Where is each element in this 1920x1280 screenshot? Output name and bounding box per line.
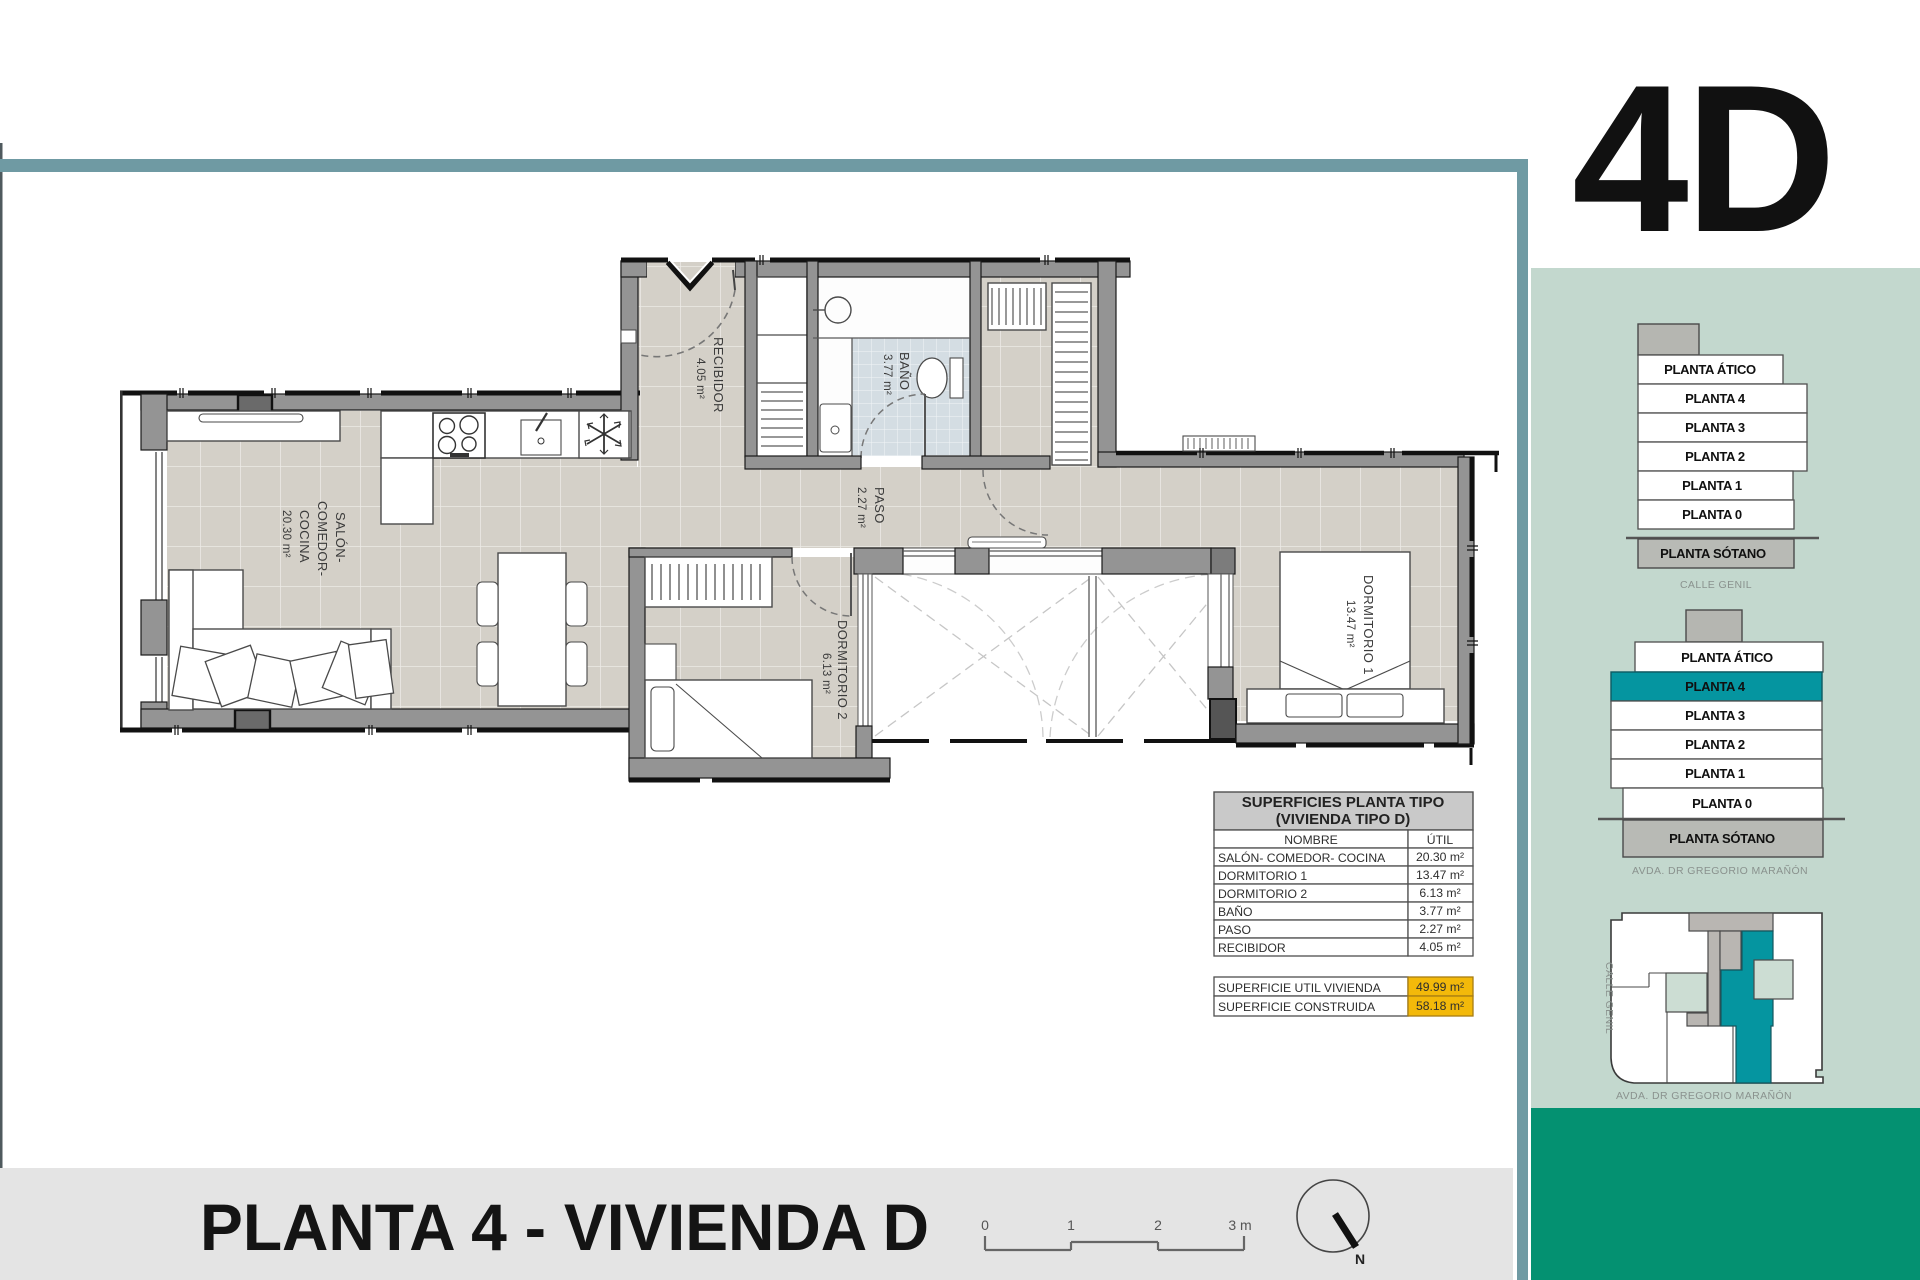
svg-text:PLANTA 1: PLANTA 1 (1685, 766, 1745, 781)
svg-text:CALLE GENIL: CALLE GENIL (1680, 579, 1752, 591)
svg-text:PLANTA 1: PLANTA 1 (1682, 478, 1742, 493)
svg-text:N: N (1355, 1251, 1365, 1267)
svg-text:6.13 m²: 6.13 m² (820, 653, 832, 694)
svg-text:COCINA: COCINA (297, 510, 312, 563)
svg-text:PLANTA ÁTICO: PLANTA ÁTICO (1664, 362, 1756, 377)
svg-text:4.05 m²: 4.05 m² (1419, 940, 1460, 954)
svg-text:CALLE GENIL: CALLE GENIL (1603, 962, 1615, 1034)
svg-text:PLANTA 3: PLANTA 3 (1685, 708, 1745, 723)
svg-text:13.47 m²: 13.47 m² (1344, 600, 1356, 648)
svg-text:ÚTIL: ÚTIL (1427, 832, 1454, 847)
svg-text:0: 0 (981, 1217, 989, 1233)
svg-text:SUPERFICIE CONSTRUIDA: SUPERFICIE CONSTRUIDA (1218, 1000, 1376, 1014)
svg-text:SALÓN-: SALÓN- (333, 512, 348, 563)
svg-text:20.30 m²: 20.30 m² (280, 510, 292, 558)
svg-text:SUPERFICIE UTIL VIVIENDA: SUPERFICIE UTIL VIVIENDA (1218, 981, 1382, 995)
svg-text:SUPERFICIES PLANTA TIPO: SUPERFICIES PLANTA TIPO (1242, 794, 1445, 811)
svg-text:3 m: 3 m (1228, 1217, 1251, 1233)
svg-text:4.05 m²: 4.05 m² (694, 358, 706, 399)
svg-text:4D: 4D (1572, 41, 1832, 276)
svg-text:SALÓN- COMEDOR- COCINA: SALÓN- COMEDOR- COCINA (1218, 850, 1386, 865)
svg-text:PLANTA 0: PLANTA 0 (1692, 796, 1752, 811)
svg-text:NOMBRE: NOMBRE (1284, 833, 1338, 847)
svg-text:DORMITORIO 1: DORMITORIO 1 (1361, 575, 1376, 675)
svg-text:1: 1 (1067, 1217, 1075, 1233)
svg-text:2: 2 (1154, 1217, 1162, 1233)
svg-text:58.18 m²: 58.18 m² (1416, 999, 1464, 1013)
svg-text:DORMITORIO 1: DORMITORIO 1 (1218, 869, 1307, 883)
svg-text:PASO: PASO (872, 487, 887, 524)
svg-text:PLANTA 4: PLANTA 4 (1685, 679, 1746, 694)
svg-text:PLANTA 2: PLANTA 2 (1685, 737, 1745, 752)
svg-text:3.77 m²: 3.77 m² (881, 354, 893, 395)
svg-text:PASO: PASO (1218, 923, 1251, 937)
svg-text:PLANTA 0: PLANTA 0 (1682, 507, 1742, 522)
svg-text:PLANTA SÓTANO: PLANTA SÓTANO (1669, 831, 1775, 846)
svg-text:PLANTA 3: PLANTA 3 (1685, 420, 1745, 435)
svg-text:49.99 m²: 49.99 m² (1416, 980, 1464, 994)
svg-text:PLANTA ÁTICO: PLANTA ÁTICO (1681, 650, 1773, 665)
svg-text:(VIVIENDA TIPO D): (VIVIENDA TIPO D) (1276, 811, 1410, 828)
svg-text:2.27 m²: 2.27 m² (855, 487, 867, 528)
svg-text:BAÑO: BAÑO (897, 352, 912, 390)
svg-text:PLANTA 4 - VIVIENDA D: PLANTA 4 - VIVIENDA D (200, 1190, 929, 1264)
svg-text:20.30 m²: 20.30 m² (1416, 850, 1464, 864)
svg-text:RECIBIDOR: RECIBIDOR (711, 337, 726, 413)
svg-text:DORMITORIO 2: DORMITORIO 2 (835, 620, 850, 720)
svg-text:3.77 m²: 3.77 m² (1419, 904, 1460, 918)
svg-text:6.13 m²: 6.13 m² (1419, 886, 1460, 900)
svg-text:AVDA. DR GREGORIO MARAÑÓN: AVDA. DR GREGORIO MARAÑÓN (1632, 864, 1808, 877)
svg-text:13.47 m²: 13.47 m² (1416, 868, 1464, 882)
svg-text:RECIBIDOR: RECIBIDOR (1218, 941, 1286, 955)
svg-text:PLANTA SÓTANO: PLANTA SÓTANO (1660, 546, 1766, 561)
svg-text:BAÑO: BAÑO (1218, 905, 1253, 919)
svg-text:DORMITORIO 2: DORMITORIO 2 (1218, 887, 1307, 901)
svg-text:COMEDOR-: COMEDOR- (315, 501, 330, 576)
svg-text:PLANTA 4: PLANTA 4 (1685, 391, 1746, 406)
svg-text:2.27 m²: 2.27 m² (1419, 922, 1460, 936)
svg-text:AVDA. DR GREGORIO MARAÑÓN: AVDA. DR GREGORIO MARAÑÓN (1616, 1089, 1792, 1102)
svg-text:PLANTA 2: PLANTA 2 (1685, 449, 1745, 464)
